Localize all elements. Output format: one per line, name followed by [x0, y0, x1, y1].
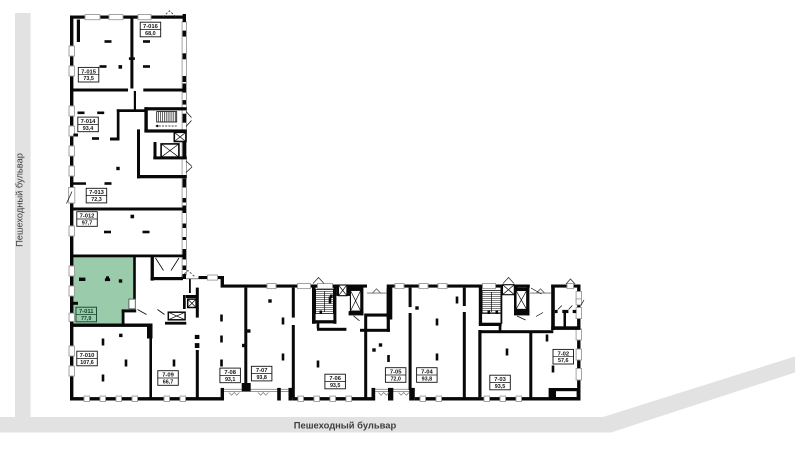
svg-text:7-015: 7-015	[81, 69, 97, 75]
svg-text:Пешеходный бульвар: Пешеходный бульвар	[294, 420, 397, 431]
svg-text:72,0: 72,0	[390, 376, 401, 382]
svg-text:7-012: 7-012	[80, 214, 95, 220]
svg-text:7-02: 7-02	[557, 351, 569, 357]
svg-text:7-05: 7-05	[390, 370, 402, 376]
svg-text:93,1: 93,1	[225, 377, 236, 383]
svg-text:73,5: 73,5	[83, 76, 94, 82]
svg-text:Пешеходный бульвар: Пешеходный бульвар	[15, 153, 25, 247]
svg-text:93,8: 93,8	[256, 375, 267, 381]
svg-text:7-03: 7-03	[494, 377, 506, 383]
svg-text:7-04: 7-04	[421, 370, 433, 376]
svg-text:66,7: 66,7	[163, 379, 174, 385]
svg-text:93,5: 93,5	[495, 384, 506, 390]
svg-text:97,7: 97,7	[82, 220, 93, 226]
svg-text:107,6: 107,6	[80, 360, 94, 366]
svg-text:68,0: 68,0	[145, 31, 156, 37]
svg-text:77,9: 77,9	[81, 316, 92, 322]
svg-text:7-014: 7-014	[81, 119, 97, 125]
svg-text:7-08: 7-08	[224, 370, 236, 376]
svg-text:72,3: 72,3	[91, 197, 102, 203]
svg-text:7-016: 7-016	[143, 24, 159, 30]
svg-text:7-013: 7-013	[89, 190, 105, 196]
svg-text:93,4: 93,4	[83, 126, 94, 132]
svg-text:7-011: 7-011	[79, 309, 94, 315]
svg-text:57,6: 57,6	[558, 358, 569, 364]
svg-text:93,5: 93,5	[330, 383, 341, 389]
svg-text:93,8: 93,8	[422, 376, 433, 382]
svg-text:7-010: 7-010	[80, 353, 95, 359]
svg-text:7-09: 7-09	[162, 373, 174, 379]
svg-text:7-06: 7-06	[329, 376, 341, 382]
svg-text:7-07: 7-07	[256, 368, 268, 374]
